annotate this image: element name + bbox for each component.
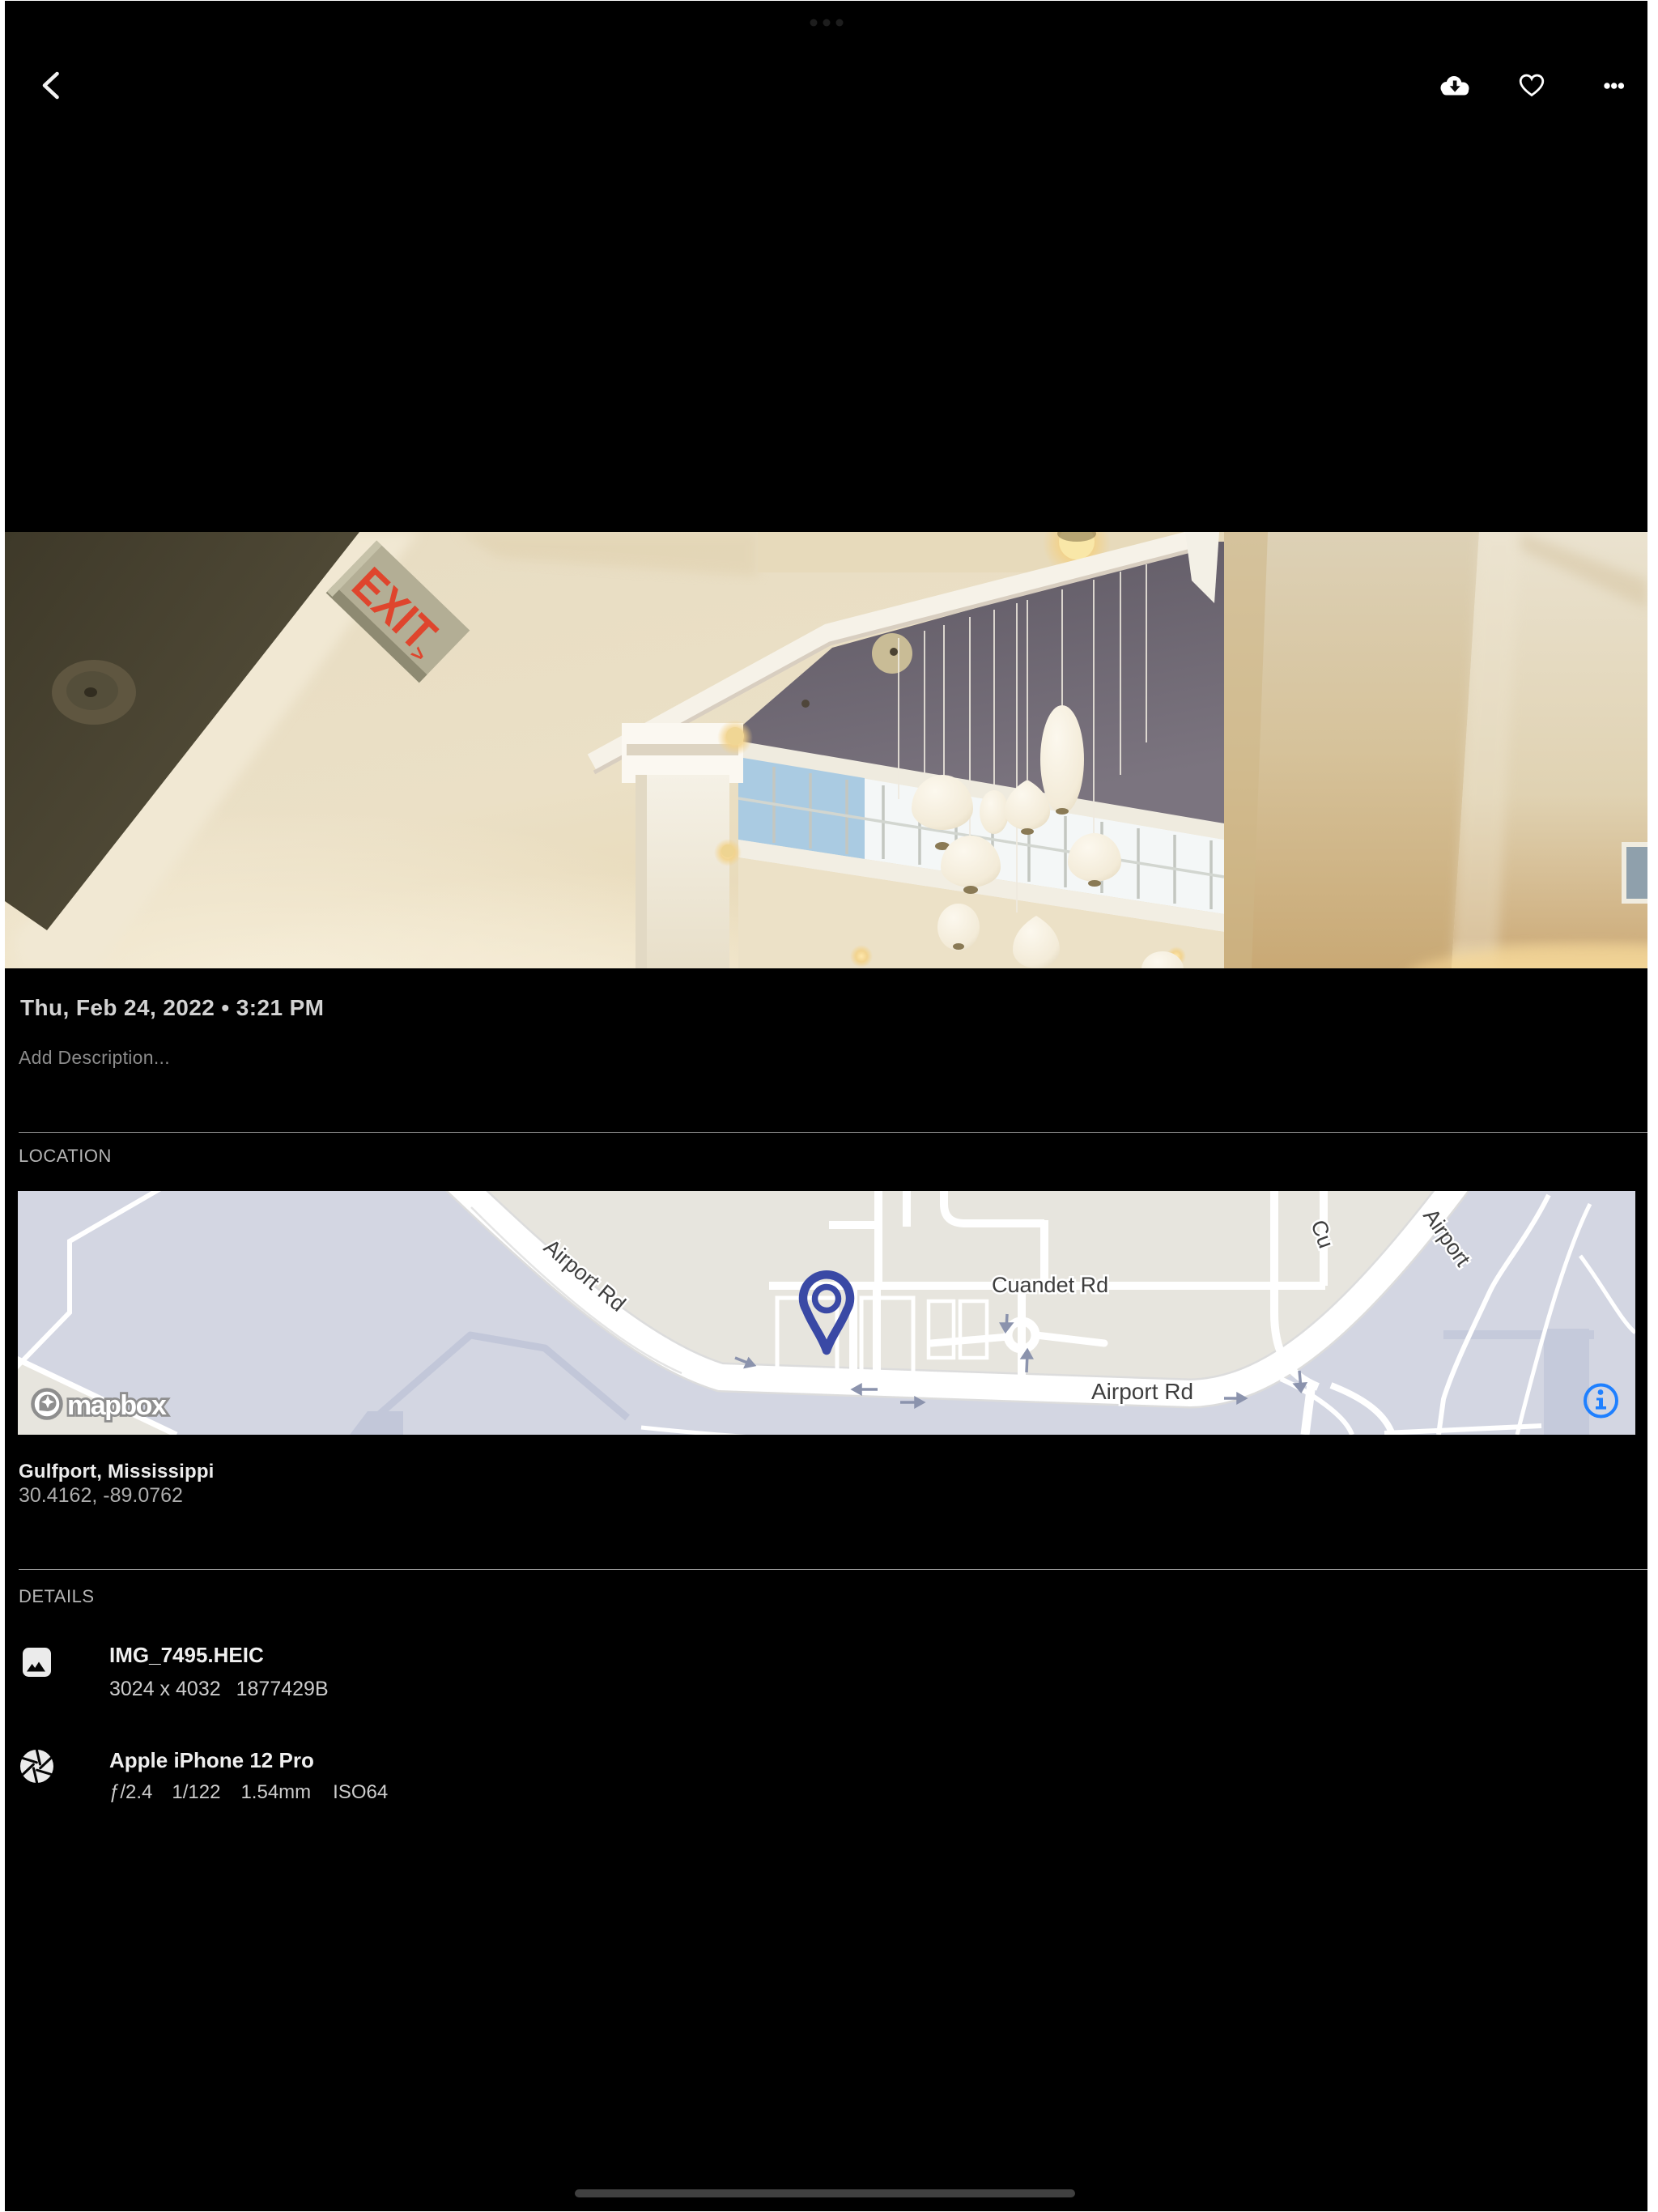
svg-text:mapbox: mapbox — [67, 1390, 167, 1421]
svg-text:Cuandet Rd: Cuandet Rd — [992, 1273, 1108, 1297]
svg-text:Airport Rd: Airport Rd — [1091, 1379, 1193, 1404]
